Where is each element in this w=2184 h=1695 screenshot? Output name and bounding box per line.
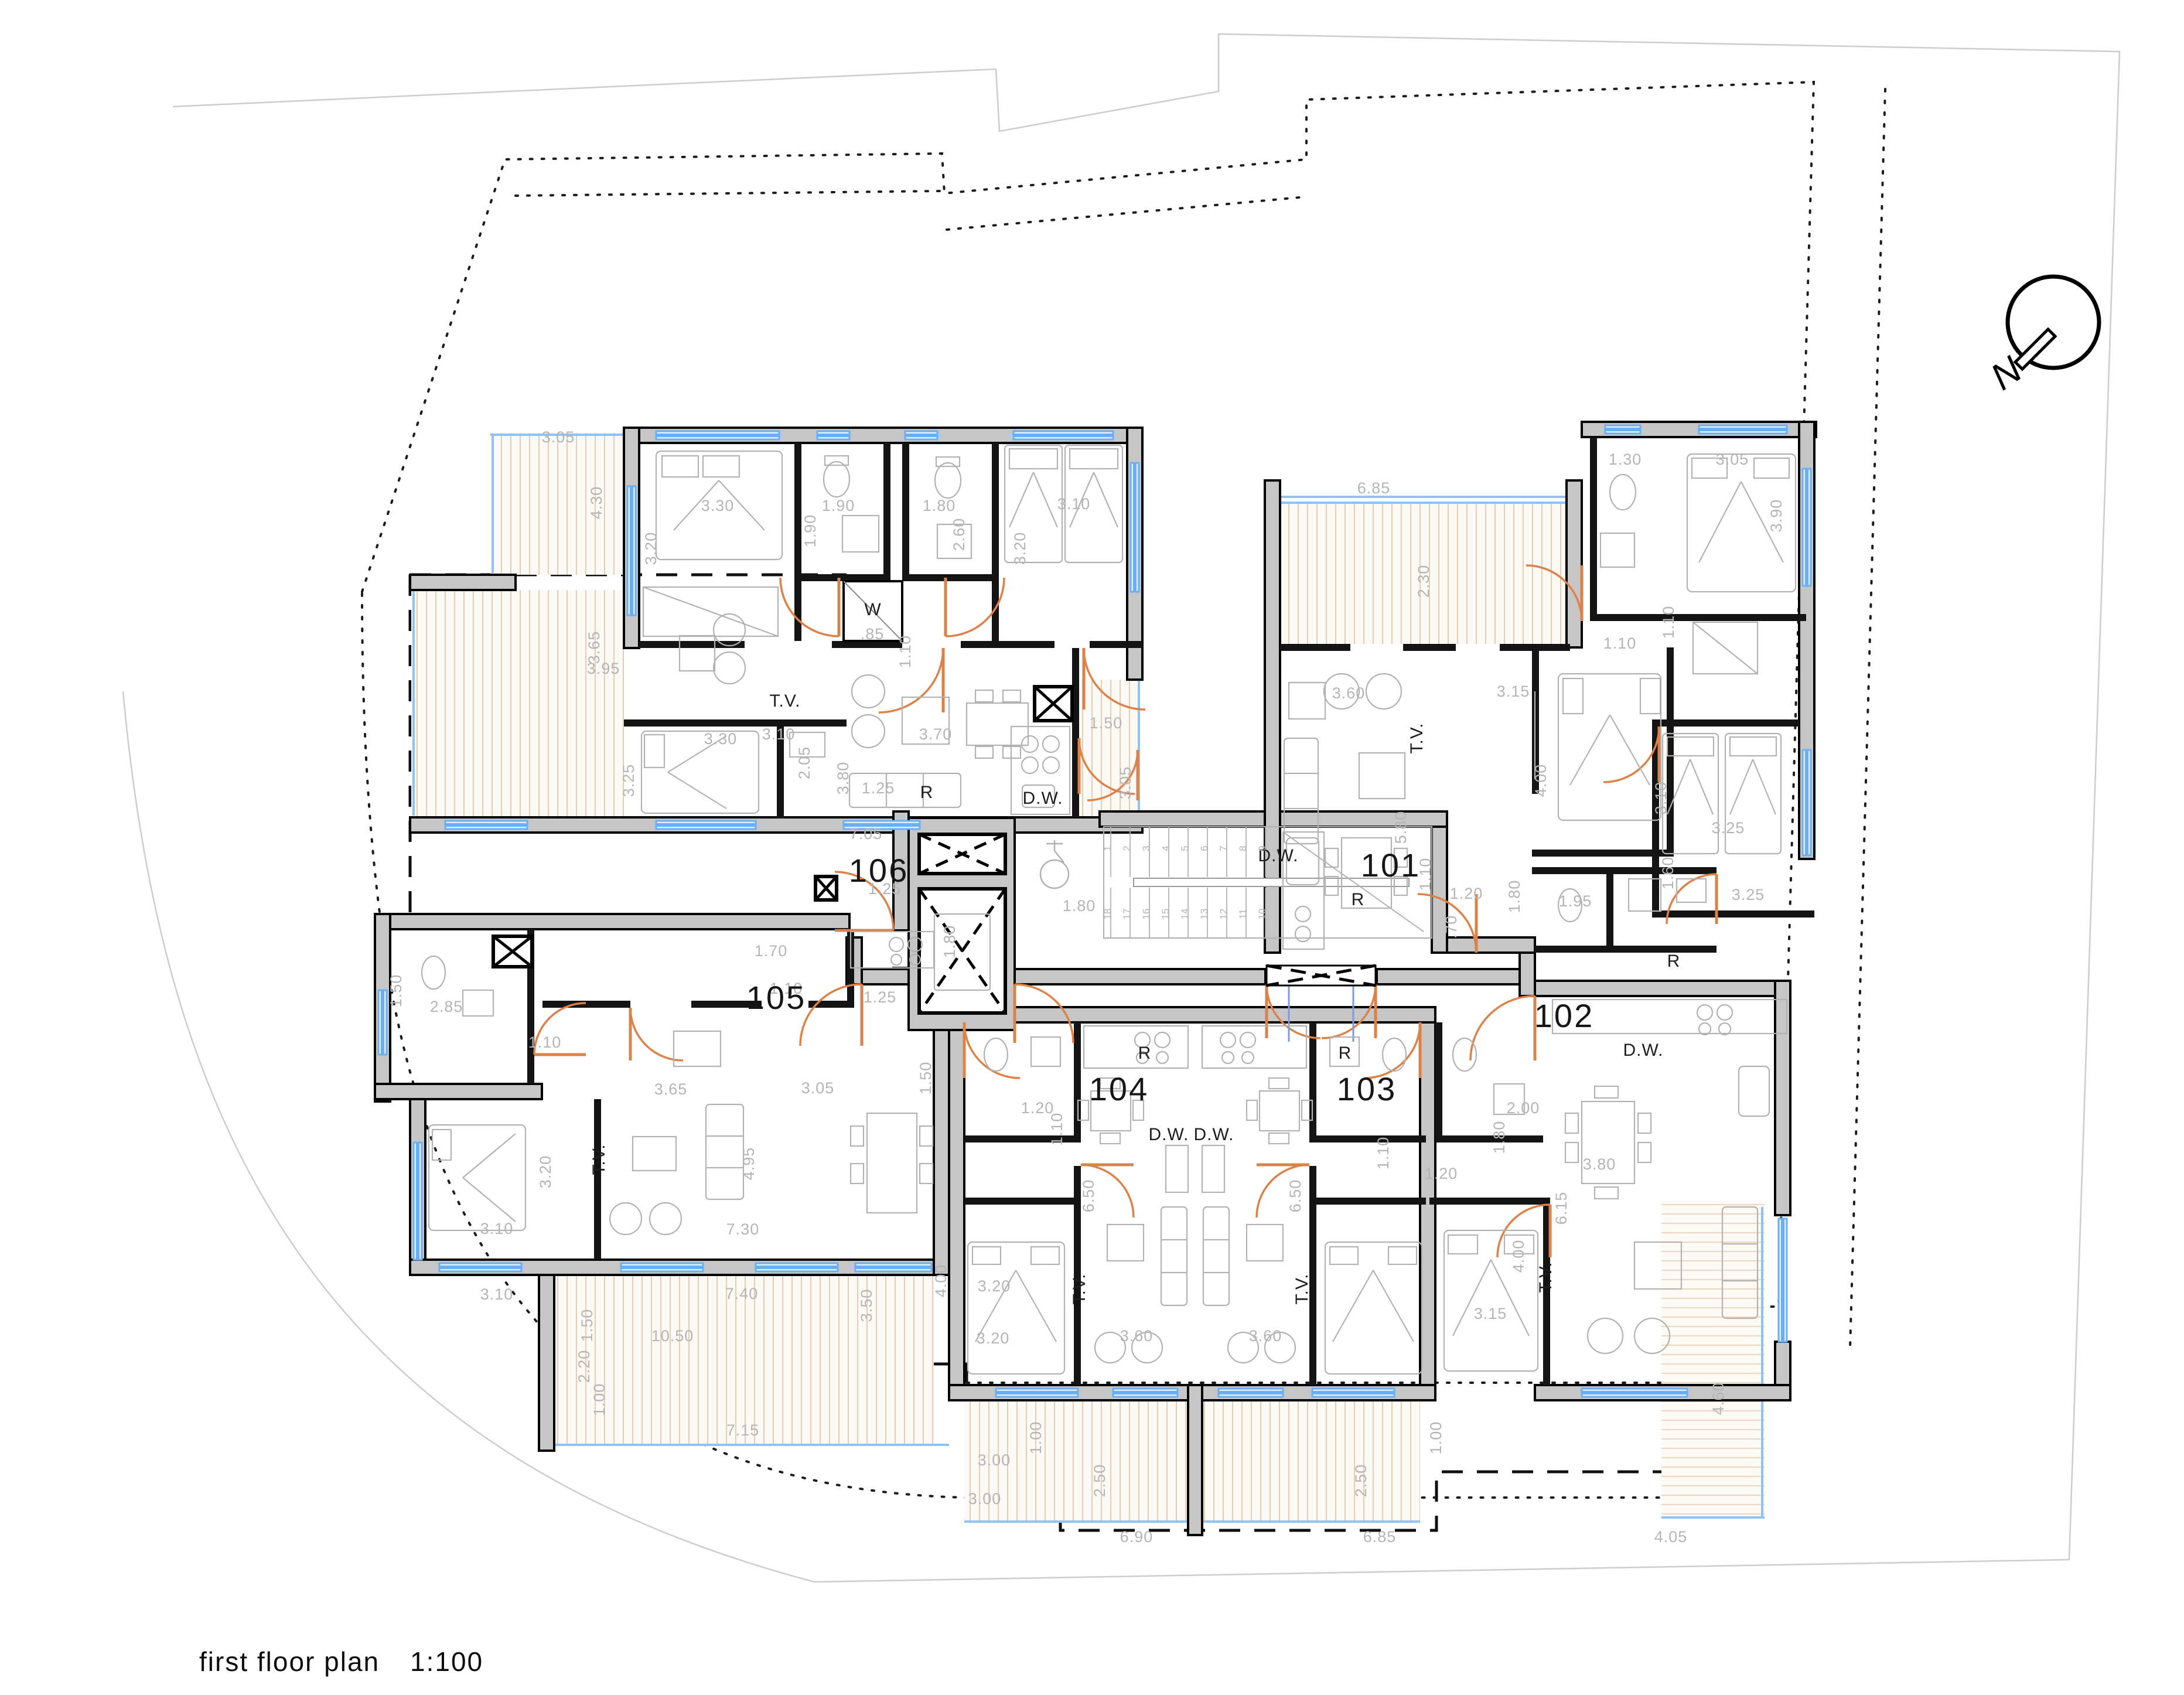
unit-number: 106: [849, 852, 909, 889]
dimension-label: 1.80: [1490, 1121, 1508, 1154]
armchair: [650, 1203, 681, 1234]
dimension-label: 3.10: [762, 725, 796, 743]
stair-number: 3: [1141, 845, 1152, 851]
dimension-label: 2.85: [430, 998, 463, 1015]
dimension-label: 1.25: [864, 988, 897, 1006]
stair-number: 9: [1257, 845, 1268, 851]
room-label: R: [1667, 951, 1681, 971]
dimension-label: 7.30: [726, 1220, 760, 1238]
window: [1779, 1219, 1787, 1342]
dimension-label: 2.50: [1352, 1464, 1370, 1498]
stair-number: 6: [1199, 845, 1210, 851]
dimension-label: 1.50: [917, 1062, 934, 1095]
dimension-label: 1.50: [387, 974, 405, 1008]
north-arrow: N: [1983, 277, 2099, 398]
coffee-table: [1107, 1225, 1144, 1261]
dimension-label: 3.00: [968, 1490, 1002, 1508]
armchair: [852, 715, 885, 748]
shaft-105: [493, 936, 532, 967]
stair-number: 18: [1102, 909, 1113, 920]
dimension-label: 3.10: [480, 1285, 514, 1303]
elevator-core: [909, 818, 1015, 1030]
armchair: [610, 1203, 641, 1234]
sofa: [1203, 1207, 1229, 1305]
window: [378, 990, 387, 1055]
dimension-label: 6.50: [1286, 1179, 1304, 1213]
property-dotted-inner-right: [1850, 89, 1885, 1348]
dimension-label: 1.80: [923, 497, 956, 514]
unit-number: 101: [1361, 847, 1421, 884]
dimension-label: 3.10: [1652, 782, 1670, 815]
dimension-label: 1.10: [1660, 606, 1677, 639]
coffee-table: [633, 1137, 676, 1171]
dining-table: [1565, 1086, 1651, 1199]
armchair: [1366, 674, 1401, 709]
window: [1013, 431, 1113, 439]
door: [780, 578, 839, 636]
dimension-label: 1.50: [578, 1309, 596, 1342]
dimension-label: 3.00: [978, 1451, 1011, 1469]
room-label: T.V.: [1292, 1274, 1312, 1305]
stair-number: 13: [1199, 909, 1210, 920]
dimension-label: 6.90: [1120, 1528, 1154, 1546]
window: [996, 1389, 1078, 1397]
dimension-label: 7.40: [725, 1285, 759, 1302]
dimension-label: 1.10: [528, 1034, 562, 1051]
coffee-table: [1359, 753, 1405, 799]
sofa: [706, 1104, 743, 1199]
bed-double: [429, 1125, 525, 1230]
dimension-label: 3.15: [1497, 683, 1530, 700]
dimension-label: .85: [861, 625, 885, 643]
dimension-label: 1.10: [1603, 635, 1637, 652]
dimension-label: 3.25: [1712, 819, 1745, 837]
window: [439, 1263, 521, 1271]
dimension-label: 1.90: [822, 497, 855, 514]
window: [414, 1142, 422, 1260]
elevator-dimension: 1.80: [941, 925, 958, 959]
room-label: T.V.: [589, 1144, 609, 1175]
dimension-label: 1.60: [1659, 857, 1677, 890]
shower: [1601, 533, 1634, 567]
room-label: T.V.: [1407, 723, 1427, 754]
dimension-label: 3.70: [919, 725, 953, 743]
kitchen-counter-103: [1202, 1026, 1306, 1068]
room-label: W: [864, 600, 881, 619]
washbasin: [463, 990, 493, 1016]
dimension-label: 1.00: [1027, 1421, 1045, 1455]
dimension-label: 3.05: [801, 1079, 835, 1097]
dimension-label: 3.50: [858, 1289, 875, 1322]
door: [1603, 727, 1659, 782]
dimension-label: 3.65: [654, 1080, 688, 1098]
dimension-label: 10.50: [651, 1327, 694, 1345]
window: [627, 486, 636, 615]
room-label: R: [1352, 890, 1365, 909]
dimension-label: 3.90: [1767, 499, 1785, 533]
room-label: T.V.: [1070, 1274, 1089, 1305]
window: [1219, 1389, 1283, 1397]
shaft-kitchen-106: [1035, 687, 1072, 721]
dimension-label: 1.10: [1048, 1113, 1066, 1146]
dimension-label: 3.80: [1583, 1155, 1616, 1173]
title-block: first floor plan 1:100: [199, 1646, 483, 1677]
dimension-label: 3.15: [1474, 1305, 1507, 1322]
terrace-106-west: [411, 590, 624, 817]
dimension-label: 3.65: [585, 631, 603, 664]
door: [630, 1008, 683, 1060]
dimension-label: 3.95: [587, 660, 620, 677]
dimension-label: 3.30: [701, 497, 735, 514]
dimension-label: 3.60: [1332, 684, 1366, 702]
dimension-label: 3.60: [1249, 1327, 1282, 1345]
window: [1312, 1389, 1394, 1397]
unit-number: 105: [746, 979, 806, 1016]
stair-number: 2: [1121, 845, 1132, 851]
window: [817, 431, 849, 439]
room-label: D.W.: [1023, 789, 1063, 808]
dimension-label: 1.10: [896, 635, 914, 669]
window: [656, 821, 756, 829]
dimension-label: 7.05: [849, 825, 883, 843]
stair-number: 7: [1218, 845, 1229, 851]
stair-number: 16: [1141, 909, 1152, 920]
dimension-label: 3.05: [1716, 451, 1749, 468]
dimension-label: 1.00: [1427, 1421, 1445, 1455]
toilet: [1610, 475, 1636, 510]
shower: [1031, 1037, 1060, 1066]
dimension-label: 2.30: [1415, 565, 1432, 598]
dimension-label: 2.20: [575, 1350, 593, 1383]
dimension-label: 3.80: [834, 762, 852, 795]
toilet: [1453, 1038, 1476, 1071]
dining-table: [1247, 1078, 1312, 1144]
terrace-chair: [714, 652, 745, 684]
dimension-label: 1.90: [801, 514, 819, 548]
dimension-label: 3.30: [704, 730, 738, 748]
dimension-label: 6.50: [1080, 1179, 1097, 1213]
stair-number: 4: [1160, 845, 1171, 851]
dimension-label: 3.25: [620, 764, 637, 797]
entrance-canopy: [1267, 966, 1376, 985]
terrace-102-east: [1661, 1201, 1765, 1517]
door: [1470, 996, 1535, 1060]
stair-number: 17: [1121, 909, 1132, 920]
window: [1803, 750, 1811, 855]
dimension-label: 3.20: [977, 1329, 1010, 1347]
window: [621, 1263, 703, 1271]
stair-number: 11: [1237, 909, 1248, 919]
dimension-label: 3.10: [1057, 495, 1091, 513]
dimension-label: 6.85: [1363, 1528, 1397, 1546]
dimension-label: 3.60: [1120, 1327, 1154, 1345]
dimension-label: 6.15: [1552, 1192, 1570, 1225]
toilet: [1383, 1038, 1406, 1071]
sink: [1166, 1145, 1188, 1192]
dimension-label: 6.85: [1357, 479, 1391, 497]
dimension-label: 4.30: [588, 486, 605, 520]
dimension-label: 2.00: [1507, 1099, 1540, 1117]
window: [756, 1263, 838, 1271]
stair-number: 14: [1179, 909, 1190, 920]
armchair: [852, 675, 885, 708]
unit-number: 103: [1337, 1070, 1397, 1107]
room-label: R: [1339, 1043, 1352, 1063]
dimension-label: 1.10: [1374, 1137, 1392, 1170]
room-label: T.V.: [1536, 1262, 1555, 1293]
coffee-table: [1247, 1225, 1283, 1261]
dimension-label: 4.05: [1654, 1528, 1688, 1546]
unit-number: 102: [1534, 997, 1594, 1034]
floor-plan-drawing: 3.303.201.901.901.802.603.103.20.851.103…: [0, 0, 2184, 1695]
dimension-label: 1.95: [1559, 892, 1592, 910]
sofa: [1161, 1207, 1187, 1305]
dining-table: [851, 1113, 933, 1213]
floor-plan-sheet: 3.303.201.901.901.802.603.103.20.851.103…: [0, 0, 2184, 1695]
dimension-label: 1.80: [1063, 897, 1096, 915]
toilet: [984, 1038, 1008, 1071]
dimension-label: 4.95: [740, 1147, 757, 1181]
dimension-label: 7.15: [726, 1421, 760, 1439]
room-label: D.W.: [1194, 1125, 1234, 1144]
dimension-label: 3.20: [978, 1277, 1011, 1295]
side-table: [1289, 683, 1325, 719]
window: [1131, 463, 1139, 592]
shower: [842, 516, 879, 552]
room-label: R: [920, 783, 934, 802]
shaft-106-lobby: [815, 877, 837, 900]
dimension-label: 1.20: [1450, 885, 1483, 902]
sink: [1739, 1066, 1769, 1116]
sink: [1202, 1145, 1224, 1192]
dimension-label: 4.00: [1510, 1240, 1527, 1273]
stair-number: 8: [1237, 845, 1248, 851]
dimension-label: 1.50: [1090, 714, 1123, 732]
window: [1605, 425, 1640, 434]
stair-number: 10: [1257, 909, 1268, 920]
window: [1582, 1389, 1687, 1397]
kitchen-counter-104: [1084, 1026, 1188, 1068]
dimension-label: 2.50: [1091, 1464, 1108, 1498]
toilet: [422, 956, 445, 989]
room-label: R: [1138, 1043, 1152, 1063]
window: [656, 431, 779, 439]
window: [445, 821, 527, 829]
door: [1364, 1022, 1420, 1078]
dimension-label: 3.20: [642, 532, 660, 565]
bed-double: [1558, 674, 1661, 820]
toilet: [824, 456, 849, 497]
bed-double: [1325, 1242, 1422, 1374]
dimension-label: 3.10: [480, 1220, 514, 1237]
dimension-label: 1.25: [862, 779, 895, 797]
window: [855, 1263, 931, 1271]
room-label: D.W.: [1623, 1041, 1664, 1060]
bed-double: [641, 731, 759, 813]
dimension-label: 3.20: [1011, 532, 1029, 565]
window: [1113, 1389, 1178, 1397]
dimension-label: 1.70: [755, 942, 788, 960]
dimension-label: 2.05: [796, 746, 813, 780]
dimension-label: 1.80: [1506, 880, 1523, 913]
dimension-label: 4.60: [1709, 1382, 1727, 1416]
room-label: T.V.: [770, 691, 801, 711]
room-label: D.W.: [1149, 1125, 1189, 1144]
dimension-label: 3.05: [1117, 766, 1134, 800]
window: [905, 431, 937, 439]
dimension-label: 3.05: [542, 428, 575, 446]
dimension-label: 1.30: [1609, 451, 1642, 468]
dimension-label: 5.80: [1392, 811, 1410, 844]
stair-number: 15: [1160, 909, 1171, 920]
bed-double: [968, 1242, 1064, 1374]
window: [1803, 469, 1811, 586]
armchair: [1588, 1318, 1623, 1353]
stair-number: 12: [1218, 909, 1229, 920]
dimension-label: 4.00: [932, 1264, 950, 1298]
unit-number: 104: [1089, 1070, 1149, 1107]
dimension-label: 3.25: [1732, 886, 1765, 903]
washbasin: [1677, 879, 1706, 902]
dimension-label: 3.20: [537, 1155, 554, 1189]
dimension-label: 1.00: [591, 1383, 608, 1417]
sheet-scale: 1:100: [410, 1646, 483, 1677]
toilet: [935, 457, 961, 498]
dining-table: [967, 690, 1028, 758]
dimension-label: .70: [1442, 915, 1460, 939]
window: [1699, 425, 1787, 434]
sheet-title: first floor plan: [199, 1646, 380, 1677]
stair-number: 1: [1102, 845, 1113, 851]
dimension-label: 4.00: [1532, 764, 1550, 797]
wheelchair-icon: [1040, 840, 1069, 888]
dimension-label: 2.60: [950, 518, 968, 551]
property-dotted-inner-top: [516, 191, 1305, 230]
dimension-label: 1.20: [1425, 1165, 1458, 1182]
stair-number: 5: [1179, 845, 1190, 851]
